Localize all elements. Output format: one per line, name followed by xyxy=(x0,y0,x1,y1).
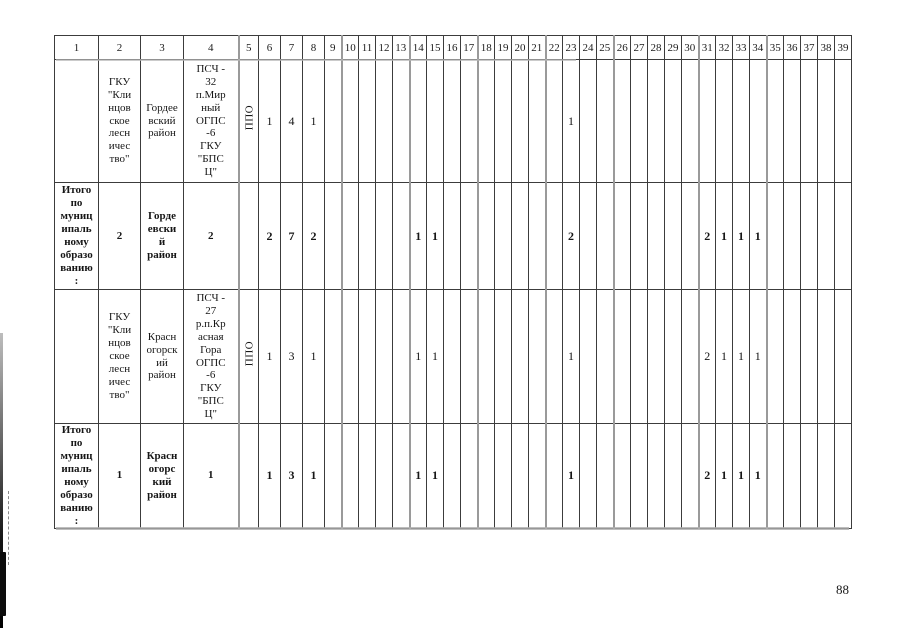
table-cell: 1 xyxy=(303,290,325,424)
page-number: 88 xyxy=(836,582,849,598)
table-cell: 1 xyxy=(563,424,580,529)
table-cell xyxy=(359,424,376,529)
table-cell: ГКУ "Кли нцов ское лесн ичес тво" xyxy=(99,290,141,424)
header-cell: 9 xyxy=(325,36,342,60)
table-cell xyxy=(478,183,495,290)
table-cell xyxy=(835,183,852,290)
table-cell xyxy=(597,183,614,290)
ppo-vertical-label: ППО xyxy=(243,112,255,131)
table-row: ГКУ "Кли нцов ское лесн ичес тво"Гордее … xyxy=(55,60,852,183)
table-cell xyxy=(818,424,835,529)
table-cell: 1 xyxy=(733,290,750,424)
table-cell: ПСЧ - 32 п.Мир ный ОГПС -6 ГКУ "БПС Ц" xyxy=(184,60,239,183)
table-cell xyxy=(239,183,259,290)
header-cell: 13 xyxy=(393,36,410,60)
table-cell xyxy=(478,424,495,529)
header-cell: 8 xyxy=(303,36,325,60)
table-cell: 2 xyxy=(699,290,716,424)
header-cell: 20 xyxy=(512,36,529,60)
table-cell xyxy=(393,290,410,424)
table-cell xyxy=(614,424,631,529)
table-cell: 2 xyxy=(259,183,281,290)
table-cell xyxy=(716,60,733,183)
table-cell xyxy=(478,290,495,424)
table-cell: 1 xyxy=(410,424,427,529)
table-cell xyxy=(546,290,563,424)
table-cell xyxy=(325,290,342,424)
header-cell: 7 xyxy=(281,36,303,60)
table-cell xyxy=(376,60,393,183)
table-cell xyxy=(699,60,716,183)
header-cell: 25 xyxy=(597,36,614,60)
table-cell xyxy=(682,290,699,424)
table-cell: ПСЧ - 27 р.п.Кр асная Гора ОГПС -6 ГКУ "… xyxy=(184,290,239,424)
table-cell xyxy=(614,290,631,424)
header-cell: 21 xyxy=(529,36,546,60)
table-cell xyxy=(767,424,784,529)
table-cell xyxy=(767,183,784,290)
header-cell: 38 xyxy=(818,36,835,60)
header-cell: 31 xyxy=(699,36,716,60)
scan-dashed-artifact xyxy=(8,491,9,565)
table-cell: 1 xyxy=(259,60,281,183)
table-cell xyxy=(818,60,835,183)
table-cell xyxy=(784,290,801,424)
header-cell: 6 xyxy=(259,36,281,60)
table-cell xyxy=(495,290,512,424)
header-cell: 27 xyxy=(631,36,648,60)
table-cell xyxy=(461,60,478,183)
table-cell xyxy=(376,290,393,424)
table-cell xyxy=(495,183,512,290)
table-row: Итого по муниц ипаль ному образо ванию :… xyxy=(55,424,852,529)
table-cell: 2 xyxy=(184,183,239,290)
table-cell xyxy=(784,60,801,183)
table-cell xyxy=(342,183,359,290)
table-cell: 7 xyxy=(281,183,303,290)
table-cell xyxy=(342,424,359,529)
table-cell: 1 xyxy=(733,424,750,529)
table-cell xyxy=(665,424,682,529)
table-cell: 2 xyxy=(303,183,325,290)
table-cell xyxy=(648,290,665,424)
header-cell: 14 xyxy=(410,36,427,60)
ppo-vertical-label: ППО xyxy=(243,347,255,366)
table-cell xyxy=(801,183,818,290)
table-cell xyxy=(546,424,563,529)
table-cell: 1 xyxy=(563,60,580,183)
table-cell xyxy=(767,60,784,183)
fire-units-table: 1234567891011121314151617181920212223242… xyxy=(54,35,852,529)
table-cell xyxy=(597,424,614,529)
table-cell: 1 xyxy=(750,290,767,424)
table-cell: 1 xyxy=(427,183,444,290)
header-cell: 15 xyxy=(427,36,444,60)
table-cell xyxy=(461,183,478,290)
header-cell: 37 xyxy=(801,36,818,60)
table-cell xyxy=(801,290,818,424)
table-cell: 2 xyxy=(563,183,580,290)
table-cell xyxy=(614,183,631,290)
table-cell xyxy=(359,290,376,424)
scan-bottom-shadow xyxy=(56,527,849,530)
table-cell xyxy=(648,60,665,183)
table-cell xyxy=(342,60,359,183)
table-cell: 1 xyxy=(750,183,767,290)
table-cell: Красн огорс кий район xyxy=(141,424,184,529)
header-cell: 29 xyxy=(665,36,682,60)
table-cell: 1 xyxy=(716,183,733,290)
header-cell: 2 xyxy=(99,36,141,60)
table-cell xyxy=(325,424,342,529)
table-cell xyxy=(580,183,597,290)
table-cell xyxy=(631,290,648,424)
table-cell xyxy=(444,183,461,290)
table-cell: 1 xyxy=(750,424,767,529)
header-cell: 4 xyxy=(184,36,239,60)
header-cell: 16 xyxy=(444,36,461,60)
table-cell: Итого по муниц ипаль ному образо ванию : xyxy=(55,183,99,290)
table-cell xyxy=(546,183,563,290)
table-cell xyxy=(410,60,427,183)
table-cell: 1 xyxy=(716,424,733,529)
header-cell: 22 xyxy=(546,36,563,60)
table-cell: ППО xyxy=(239,60,259,183)
table-cell: 1 xyxy=(259,290,281,424)
header-cell: 36 xyxy=(784,36,801,60)
table-cell xyxy=(733,60,750,183)
table-cell: 1 xyxy=(303,424,325,529)
table-cell xyxy=(512,60,529,183)
table-cell xyxy=(784,424,801,529)
table-cell: 1 xyxy=(410,183,427,290)
table-cell xyxy=(359,60,376,183)
table-cell xyxy=(597,60,614,183)
table-cell: ППО xyxy=(239,290,259,424)
table-cell xyxy=(580,424,597,529)
table-cell: 1 xyxy=(410,290,427,424)
table-cell xyxy=(376,424,393,529)
header-cell: 32 xyxy=(716,36,733,60)
table-cell xyxy=(631,183,648,290)
table-cell xyxy=(546,60,563,183)
header-cell: 34 xyxy=(750,36,767,60)
table-cell: 1 xyxy=(303,60,325,183)
table-cell: 1 xyxy=(184,424,239,529)
table-cell xyxy=(461,424,478,529)
table-cell xyxy=(55,60,99,183)
table-cell xyxy=(393,424,410,529)
table-cell xyxy=(580,290,597,424)
header-cell: 35 xyxy=(767,36,784,60)
header-cell: 30 xyxy=(682,36,699,60)
header-cell: 11 xyxy=(359,36,376,60)
table-cell: 3 xyxy=(281,290,303,424)
table-cell xyxy=(801,60,818,183)
header-cell: 24 xyxy=(580,36,597,60)
table-body: ГКУ "Кли нцов ское лесн ичес тво"Гордее … xyxy=(55,60,852,529)
table-cell xyxy=(376,183,393,290)
table-cell xyxy=(665,60,682,183)
table-cell xyxy=(665,290,682,424)
header-row: 1234567891011121314151617181920212223242… xyxy=(55,36,852,60)
table-cell xyxy=(342,290,359,424)
table-cell: 3 xyxy=(281,424,303,529)
table-cell xyxy=(682,60,699,183)
scan-edge-artifact-blob xyxy=(0,552,6,616)
table-cell xyxy=(682,424,699,529)
table-cell xyxy=(495,60,512,183)
header-cell: 26 xyxy=(614,36,631,60)
table-cell xyxy=(495,424,512,529)
table-cell: Горде евски й район xyxy=(141,183,184,290)
table-cell xyxy=(325,60,342,183)
table-cell xyxy=(427,60,444,183)
table-cell xyxy=(750,60,767,183)
table-cell xyxy=(444,60,461,183)
table-cell xyxy=(580,60,597,183)
table-cell xyxy=(393,183,410,290)
table-cell xyxy=(529,290,546,424)
table-cell xyxy=(631,424,648,529)
table-cell: 1 xyxy=(99,424,141,529)
header-cell: 12 xyxy=(376,36,393,60)
table-cell: Красн огорск ий район xyxy=(141,290,184,424)
table-cell xyxy=(818,290,835,424)
table-cell xyxy=(835,424,852,529)
document-page: 1234567891011121314151617181920212223242… xyxy=(0,0,905,640)
table-cell xyxy=(461,290,478,424)
table-cell: Итого по муниц ипаль ному образо ванию : xyxy=(55,424,99,529)
table-cell xyxy=(55,290,99,424)
header-cell: 23 xyxy=(563,36,580,60)
table-cell xyxy=(529,424,546,529)
table-cell xyxy=(512,290,529,424)
table-cell xyxy=(818,183,835,290)
table-cell xyxy=(393,60,410,183)
table-cell xyxy=(444,424,461,529)
table-cell xyxy=(801,424,818,529)
header-cell: 18 xyxy=(478,36,495,60)
table-cell xyxy=(512,183,529,290)
table-cell xyxy=(529,183,546,290)
header-cell: 33 xyxy=(733,36,750,60)
header-cell: 17 xyxy=(461,36,478,60)
table-cell: 4 xyxy=(281,60,303,183)
table-cell: 2 xyxy=(699,424,716,529)
header-cell: 5 xyxy=(239,36,259,60)
scan-header-shadow xyxy=(56,59,576,61)
header-cell: 3 xyxy=(141,36,184,60)
header-cell: 19 xyxy=(495,36,512,60)
table-cell xyxy=(239,424,259,529)
table-cell xyxy=(767,290,784,424)
table-cell: 2 xyxy=(699,183,716,290)
table-cell: 1 xyxy=(563,290,580,424)
header-cell: 10 xyxy=(342,36,359,60)
table-cell xyxy=(512,424,529,529)
table-cell xyxy=(359,183,376,290)
table-cell: ГКУ "Кли нцов ское лесн ичес тво" xyxy=(99,60,141,183)
table-cell: 1 xyxy=(427,424,444,529)
table-cell xyxy=(784,183,801,290)
header-cell: 39 xyxy=(835,36,852,60)
table-cell: 2 xyxy=(99,183,141,290)
table-cell xyxy=(835,290,852,424)
header-cell: 1 xyxy=(55,36,99,60)
table-cell xyxy=(631,60,648,183)
table-cell xyxy=(648,183,665,290)
header-cell: 28 xyxy=(648,36,665,60)
table-cell xyxy=(614,60,631,183)
table-cell xyxy=(682,183,699,290)
table-row: Итого по муниц ипаль ному образо ванию :… xyxy=(55,183,852,290)
table-cell xyxy=(648,424,665,529)
table-cell xyxy=(665,183,682,290)
table-cell xyxy=(529,60,546,183)
table-cell xyxy=(444,290,461,424)
table-cell xyxy=(835,60,852,183)
table-cell: 1 xyxy=(733,183,750,290)
table-cell: 1 xyxy=(716,290,733,424)
table-cell xyxy=(325,183,342,290)
table-cell xyxy=(478,60,495,183)
table-row: ГКУ "Кли нцов ское лесн ичес тво"Красн о… xyxy=(55,290,852,424)
table-cell: 1 xyxy=(259,424,281,529)
table-cell: Гордее вский район xyxy=(141,60,184,183)
table-cell: 1 xyxy=(427,290,444,424)
table-cell xyxy=(597,290,614,424)
